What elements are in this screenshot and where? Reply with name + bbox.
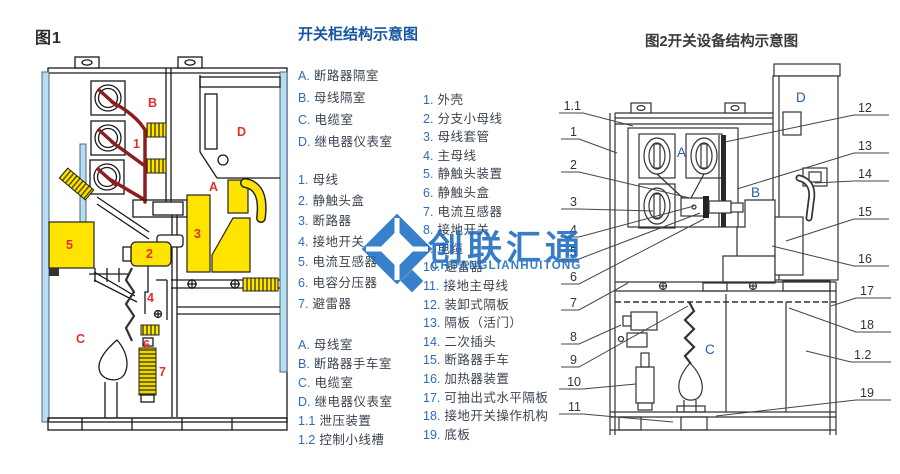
svg-text:11: 11 — [568, 400, 581, 414]
fig1-rails — [171, 278, 280, 291]
svg-text:13: 13 — [858, 139, 872, 153]
page: 图1 — [0, 0, 900, 474]
svg-text:12: 12 — [858, 101, 872, 115]
legend-item: 1.母线 — [298, 172, 438, 193]
fig1-caption: 图1 — [35, 24, 62, 48]
fig2-arrester — [636, 353, 654, 410]
svg-text:16: 16 — [858, 252, 872, 266]
fig2-label-a: A — [677, 145, 686, 160]
fig1-base — [48, 418, 287, 430]
fig2-label-b: B — [751, 185, 760, 200]
fig1-label-d: D — [237, 125, 246, 139]
svg-text:4: 4 — [570, 223, 577, 237]
svg-text:1.1: 1.1 — [564, 99, 581, 113]
fig1-cable-assembly — [89, 268, 134, 418]
svg-text:9: 9 — [570, 353, 577, 367]
fig1-arrester — [139, 325, 159, 402]
legend-column-1: A.断路器隔室 B.母线隔室 C.电缆室 D.继电器仪表室 1.母线 2.静触头… — [298, 68, 438, 451]
legend-item: 3.断路器 — [298, 213, 438, 234]
svg-text:1.2: 1.2 — [854, 348, 871, 362]
svg-text:2: 2 — [570, 158, 577, 172]
svg-text:5: 5 — [570, 245, 577, 259]
fig1-label-6: 6 — [143, 338, 150, 352]
fig1-label-b: B — [148, 96, 157, 110]
fig2-lifting-lugs — [631, 103, 745, 113]
svg-text:14: 14 — [858, 167, 872, 181]
legend-item: C.电缆室 — [298, 112, 438, 134]
fig1-left-panel — [42, 72, 49, 422]
svg-text:10: 10 — [567, 375, 581, 389]
legend-item: B.母线隔室 — [298, 90, 438, 112]
legend-item: 6.电容分压器 — [298, 275, 438, 296]
svg-text:18: 18 — [860, 318, 874, 332]
fig1-label-a: A — [209, 180, 218, 194]
svg-text:7: 7 — [570, 296, 577, 310]
svg-text:6: 6 — [570, 270, 577, 284]
legend-item: 1.2控制小线槽 — [298, 432, 438, 451]
fig2-label-c: C — [705, 342, 715, 357]
legend-item: C.电缆室 — [298, 375, 438, 394]
fig1-label-c: C — [76, 332, 85, 346]
svg-text:19: 19 — [860, 386, 874, 400]
svg-text:17: 17 — [860, 284, 874, 298]
legend-item: 4.接地开关 — [298, 234, 438, 255]
fig1-diagram: B 1 D A 3 2 5 4 C 6 7 — [37, 52, 292, 450]
fig2-diagram: A B C D 1.1 1 2 3 4 5 6 7 8 9 10 — [553, 50, 900, 454]
legend-item: 1.1泄压装置 — [298, 413, 438, 432]
legend-item: A.断路器隔室 — [298, 68, 438, 90]
fig1-lifting-lugs — [75, 57, 202, 68]
svg-text:1: 1 — [570, 125, 577, 139]
legend-item: 7.避雷器 — [298, 296, 438, 317]
fig1-label-4: 4 — [147, 291, 154, 305]
svg-text:3: 3 — [570, 195, 577, 209]
legend-item: A.母线室 — [298, 337, 438, 356]
legend-item: 5.电流互感器 — [298, 254, 438, 275]
fig2-title: 图2开关设备结构示意图 — [645, 30, 798, 51]
svg-text:8: 8 — [570, 330, 577, 344]
fig1-right-panel — [280, 72, 287, 372]
legend-item: 2.静触头盒 — [298, 193, 438, 214]
fig1-label-2: 2 — [146, 247, 153, 261]
legend-title: 开关柜结构示意图 — [298, 23, 418, 44]
fig1-label-5: 5 — [66, 238, 73, 252]
fig1-label-7: 7 — [159, 365, 166, 379]
legend-item: D.继电器仪表室 — [298, 394, 438, 413]
fig2-label-d: D — [796, 90, 806, 105]
fig2-cable-assembly — [677, 302, 705, 412]
fig1-label-1: 1 — [133, 137, 140, 151]
fig1-bushings — [90, 81, 125, 194]
legend-item: B.断路器手车室 — [298, 356, 438, 375]
fig1-label-3: 3 — [194, 227, 201, 241]
legend-item: D.继电器仪表室 — [298, 134, 438, 156]
svg-text:15: 15 — [858, 205, 872, 219]
fig2-ground-bus-rail — [615, 281, 836, 291]
